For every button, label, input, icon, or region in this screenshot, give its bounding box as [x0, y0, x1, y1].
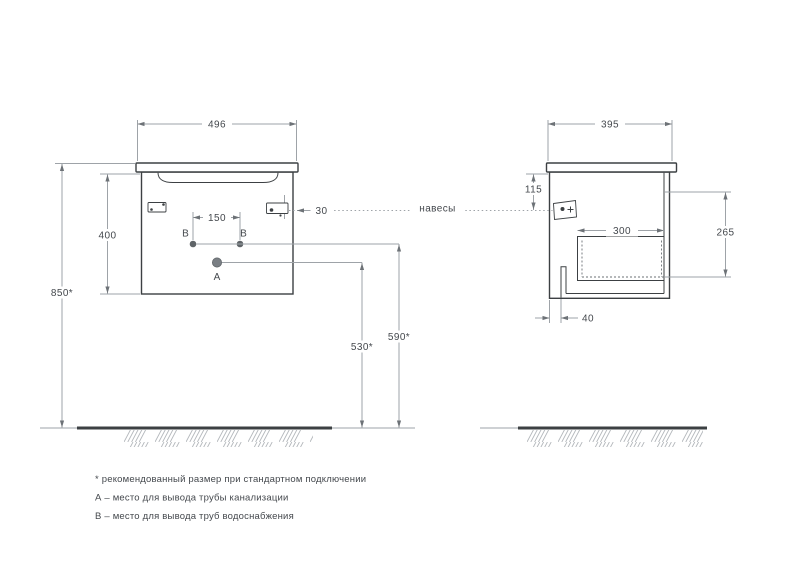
note-point-b: В – место для вывода труб водоснабжения	[95, 511, 294, 522]
svg-text:590*: 590*	[388, 332, 410, 343]
dim-side-inner-height-265: 265	[665, 192, 740, 277]
installation-drawing-page: В В А 30 навесы	[0, 0, 790, 568]
hangers-label: навесы	[419, 204, 455, 215]
dim-front-height-400: 400	[94, 174, 141, 294]
dim-hanger-drop-115: 115	[521, 174, 549, 210]
point-b-right-label: В	[240, 229, 247, 240]
floor-hatching-left	[120, 430, 313, 447]
svg-text:400: 400	[99, 231, 117, 242]
drain-point-a	[212, 258, 221, 267]
side-hanger-icon	[554, 201, 577, 220]
svg-text:265: 265	[717, 228, 735, 239]
floor-hatching-right	[522, 430, 703, 447]
dim-hanger-offset-label: 30	[316, 206, 328, 217]
front-view: В В А	[136, 163, 298, 294]
technical-drawing-svg: В В А 30 навесы	[0, 0, 790, 568]
note-recommended-size: * рекомендованный размер при стандартном…	[95, 474, 366, 485]
side-countertop	[547, 163, 677, 172]
water-point-b-left	[190, 241, 197, 248]
svg-text:496: 496	[208, 120, 226, 131]
svg-text:530*: 530*	[351, 342, 373, 353]
dim-front-width-496: 496	[138, 118, 297, 161]
point-a-label: А	[214, 272, 221, 283]
dim-water-height-590: 590*	[384, 244, 415, 428]
svg-text:115: 115	[525, 185, 542, 196]
svg-text:150: 150	[208, 213, 226, 224]
note-point-a: А – место для вывода трубы канализации	[95, 493, 288, 504]
front-hanger-left-icon	[148, 203, 166, 213]
front-countertop	[136, 163, 298, 172]
svg-text:40: 40	[582, 314, 594, 325]
hangers-reference-line: 30 навесы	[289, 202, 553, 217]
dim-mount-height-850: 850*	[47, 164, 135, 429]
dim-side-depth-395: 395	[548, 118, 672, 161]
dim-drain-height-530: 530*	[347, 263, 378, 429]
svg-text:300: 300	[613, 226, 631, 237]
svg-text:395: 395	[601, 120, 619, 131]
svg-text:850*: 850*	[51, 288, 73, 299]
dim-slot-offset-40: 40	[535, 299, 594, 325]
footnotes: * рекомендованный размер при стандартном…	[95, 474, 366, 522]
point-b-left-label: В	[182, 229, 189, 240]
